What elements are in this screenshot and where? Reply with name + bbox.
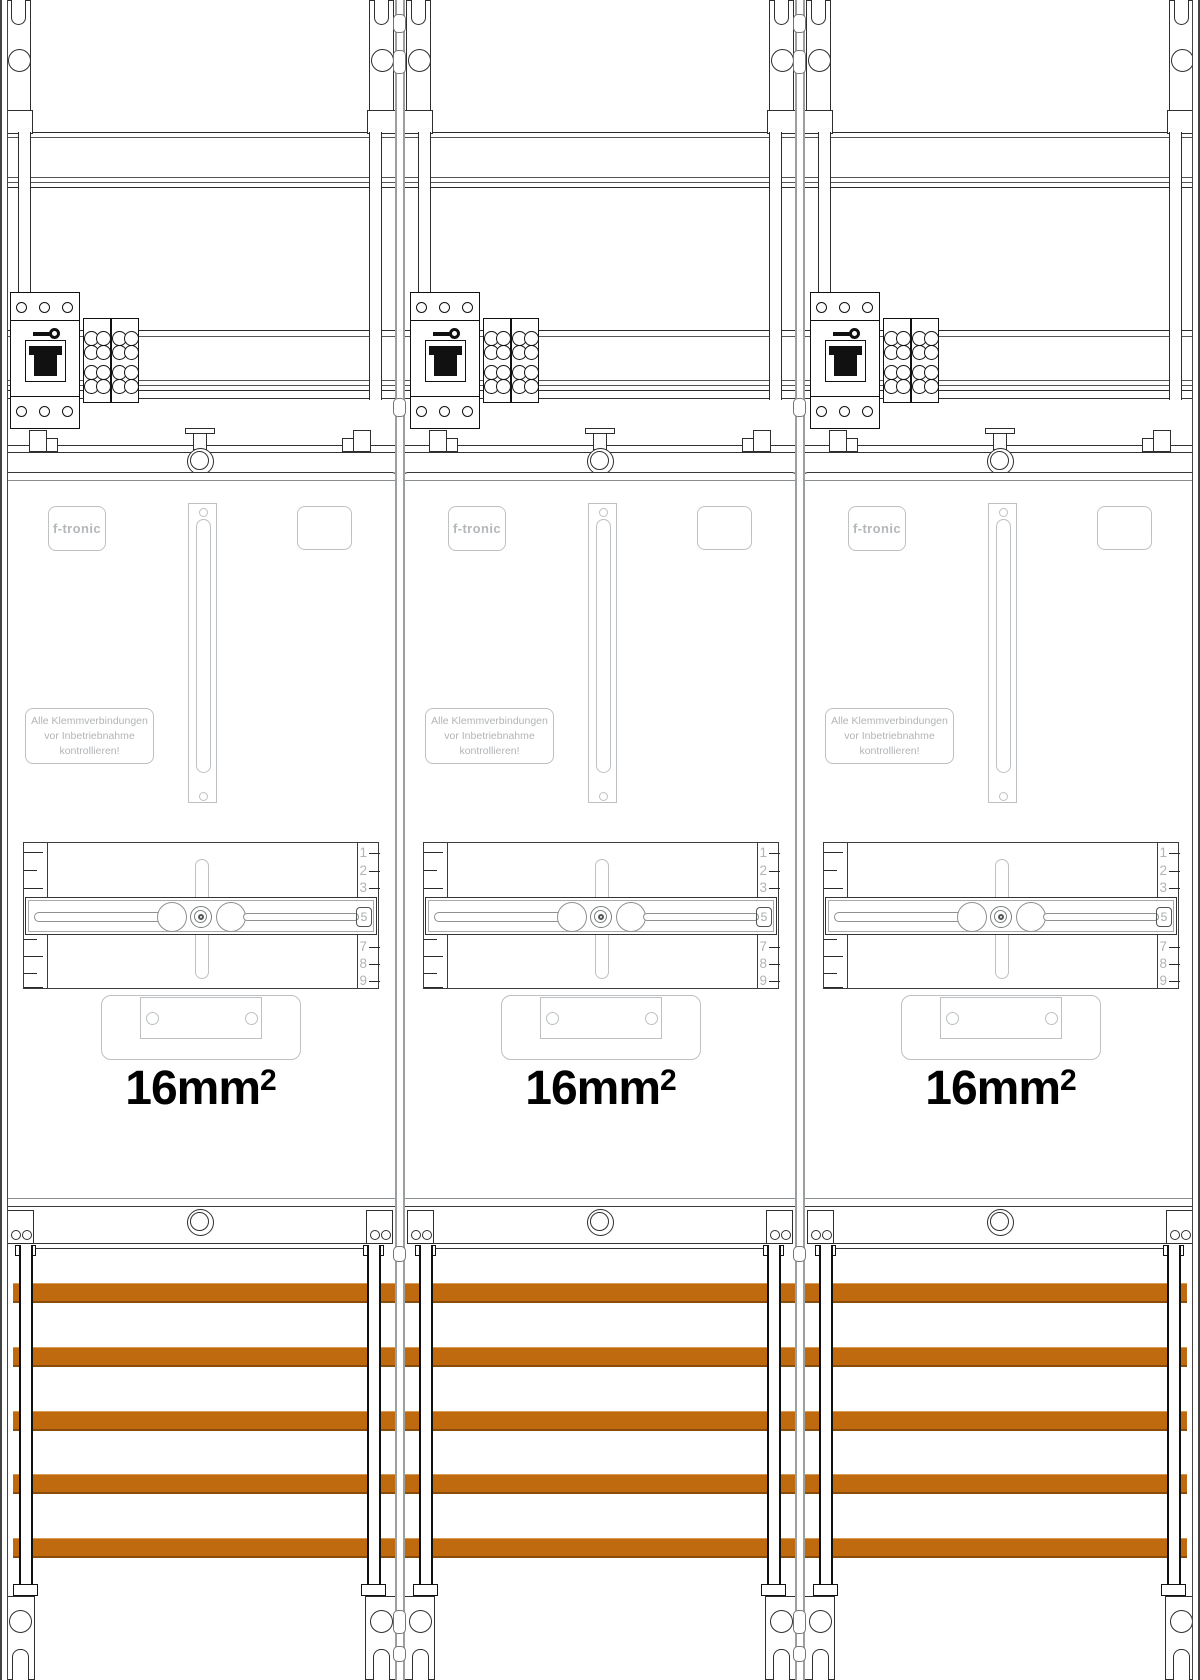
meter-panel-cover: f-tronic Alle Klemmverbindungen vor Inbe… bbox=[2, 472, 398, 1207]
tick-mark bbox=[24, 987, 43, 988]
tick-mark bbox=[1169, 888, 1180, 889]
tick-mark bbox=[369, 964, 380, 965]
cross-section-label: 16mm2 bbox=[3, 1061, 399, 1116]
warning-line: vor Inbetriebnahme bbox=[826, 729, 953, 744]
mount-hole-inner bbox=[190, 1212, 209, 1231]
tick-mark bbox=[24, 888, 43, 889]
scale-number: 9 bbox=[1155, 974, 1167, 988]
tick-mark bbox=[769, 853, 780, 854]
band-profile bbox=[766, 1210, 793, 1244]
rail-notch bbox=[774, 0, 789, 25]
slider-hole bbox=[616, 902, 646, 932]
top-rail-right-narrow bbox=[1169, 132, 1182, 400]
scale-number: 1 bbox=[1155, 846, 1167, 860]
scale-number: 3 bbox=[755, 881, 767, 895]
rail-hole bbox=[809, 1610, 832, 1633]
meter-panel-cover: f-tronic Alle Klemmverbindungen vor Inbe… bbox=[402, 472, 798, 1207]
mount-hole-inner bbox=[590, 451, 609, 470]
divider-clip bbox=[393, 1610, 406, 1634]
profile-hole bbox=[370, 1230, 380, 1240]
tick-mark bbox=[24, 956, 43, 957]
profile-hole bbox=[1170, 1230, 1180, 1240]
device-divider bbox=[811, 320, 879, 321]
mount-hole bbox=[187, 448, 214, 475]
busbar-support bbox=[19, 1245, 33, 1586]
band-profile bbox=[1142, 438, 1154, 452]
scale-number: 8 bbox=[1155, 957, 1167, 971]
terminal-hole bbox=[896, 331, 911, 346]
profile-hole bbox=[822, 1230, 832, 1240]
terminal-hole bbox=[124, 345, 139, 360]
rail-notch bbox=[374, 0, 389, 25]
brand-text: f-tronic bbox=[453, 521, 501, 536]
tick-mark bbox=[824, 939, 837, 940]
meter-panel-cover: f-tronic Alle Klemmverbindungen vor Inbe… bbox=[802, 472, 1198, 1207]
screw-hole bbox=[16, 302, 27, 313]
brand-logo: f-tronic bbox=[848, 506, 906, 551]
center-bolt bbox=[190, 906, 212, 928]
tick-mark bbox=[369, 888, 380, 889]
divider-clip bbox=[393, 398, 406, 417]
busbar-support bbox=[1167, 1245, 1181, 1586]
slider-slot bbox=[1043, 913, 1159, 921]
slot-hole bbox=[199, 792, 208, 801]
tick-mark bbox=[424, 852, 443, 853]
cross-section-value: 16mm bbox=[925, 1062, 1060, 1115]
mount-hole-inner bbox=[590, 1212, 609, 1231]
enclosure-edge-left bbox=[0, 0, 8, 1680]
scale-number: 7 bbox=[1155, 940, 1167, 954]
tick-mark bbox=[824, 973, 837, 974]
slider-hole bbox=[216, 902, 246, 932]
device-divider bbox=[811, 396, 879, 397]
warning-label: Alle Klemmverbindungen vor Inbetriebnahm… bbox=[825, 708, 954, 764]
warning-line: kontrollieren! bbox=[26, 744, 153, 759]
band-profile bbox=[446, 438, 458, 452]
profile-hole bbox=[770, 1230, 780, 1240]
position-indicator: 5 bbox=[356, 907, 372, 927]
tick-mark bbox=[369, 947, 380, 948]
top-rail-right-foot bbox=[367, 110, 396, 134]
tick-mark bbox=[824, 870, 837, 871]
warning-line: Alle Klemmverbindungen bbox=[826, 714, 953, 729]
rail-hole bbox=[1170, 1610, 1193, 1633]
profile-hole bbox=[381, 1230, 391, 1240]
screw-hole bbox=[62, 406, 73, 417]
terminal-hole bbox=[96, 345, 111, 360]
band-profile bbox=[342, 438, 354, 452]
profile-hole bbox=[11, 1230, 21, 1240]
terminal-hole bbox=[96, 365, 111, 380]
screw-hole bbox=[439, 406, 450, 417]
switch-window bbox=[25, 340, 66, 382]
top-rail-right bbox=[369, 0, 394, 112]
screw-hole bbox=[146, 1012, 159, 1025]
warning-line: kontrollieren! bbox=[426, 744, 553, 759]
terminal-hole bbox=[524, 331, 539, 346]
divider-clip bbox=[793, 398, 806, 417]
panel-bottom-inner-line bbox=[803, 1198, 1197, 1199]
warning-line: vor Inbetriebnahme bbox=[426, 729, 553, 744]
mount-hole-inner bbox=[190, 451, 209, 470]
busbar-support-foot bbox=[761, 1584, 786, 1596]
panel-bottom-inner-line bbox=[3, 1198, 397, 1199]
band-profile bbox=[46, 438, 58, 452]
rail-notch bbox=[12, 1649, 29, 1680]
terminal-hole bbox=[924, 379, 939, 394]
sealing-slot bbox=[588, 503, 617, 803]
divider-clip bbox=[793, 50, 806, 74]
slider-slot bbox=[834, 912, 975, 922]
mounting-plate-inner bbox=[940, 997, 1062, 1039]
tick-mark bbox=[24, 973, 37, 974]
busbar-support-foot bbox=[413, 1584, 438, 1596]
band-profile bbox=[7, 1210, 34, 1244]
scale-number: 8 bbox=[355, 957, 367, 971]
rail-hole bbox=[771, 49, 794, 72]
terminal-block bbox=[483, 318, 511, 403]
slider-bar: 5 bbox=[425, 897, 777, 935]
warning-line: Alle Klemmverbindungen bbox=[426, 714, 553, 729]
top-rail-left bbox=[406, 0, 431, 112]
center-bolt-core bbox=[198, 914, 204, 920]
rail-hole bbox=[370, 1610, 393, 1633]
profile-hole bbox=[811, 1230, 821, 1240]
terminal-hole bbox=[96, 331, 111, 346]
terminal-hole bbox=[124, 379, 139, 394]
terminal-hole bbox=[124, 365, 139, 380]
tick-mark bbox=[424, 987, 443, 988]
panel-bottom-inner-line bbox=[403, 1198, 797, 1199]
scale-number: 1 bbox=[755, 846, 767, 860]
center-bolt bbox=[590, 906, 612, 928]
position-indicator: 5 bbox=[1156, 907, 1172, 927]
tick-mark bbox=[769, 981, 780, 982]
panel-top-inner-line bbox=[803, 480, 1197, 481]
tick-mark bbox=[824, 888, 843, 889]
terminal-block bbox=[111, 318, 139, 403]
mount-hole-inner bbox=[990, 451, 1009, 470]
top-rail-right-narrow bbox=[769, 132, 782, 400]
mount-hole bbox=[587, 448, 614, 475]
band-profile bbox=[742, 438, 754, 452]
busbar-support-foot bbox=[1161, 1584, 1186, 1596]
rail-notch bbox=[812, 1649, 829, 1680]
center-bolt bbox=[990, 906, 1012, 928]
scale-number: 9 bbox=[355, 974, 367, 988]
terminal-hole bbox=[496, 331, 511, 346]
switch-symbol bbox=[834, 354, 857, 376]
tick-mark bbox=[369, 981, 380, 982]
scale-number: 2 bbox=[755, 864, 767, 878]
divider-clip bbox=[393, 1646, 406, 1662]
tick-mark bbox=[424, 939, 437, 940]
terminal-hole bbox=[524, 365, 539, 380]
blank-plate bbox=[697, 506, 752, 550]
busbar-support-foot bbox=[361, 1584, 386, 1596]
rail-notch bbox=[1174, 0, 1189, 25]
band-edge-lines bbox=[833, 1243, 1167, 1249]
switch-window bbox=[825, 340, 866, 382]
slider-bar: 5 bbox=[825, 897, 1177, 935]
band-profile bbox=[753, 430, 771, 452]
cross-section-exponent: 2 bbox=[660, 1064, 677, 1097]
rail-notch bbox=[412, 1649, 429, 1680]
divider-clip bbox=[393, 14, 406, 33]
terminal-hole bbox=[924, 345, 939, 360]
switch-symbol bbox=[34, 354, 57, 376]
band-profile bbox=[353, 430, 371, 452]
terminal-hole bbox=[124, 331, 139, 346]
tick-mark bbox=[824, 956, 843, 957]
tick-mark bbox=[769, 964, 780, 965]
brand-text: f-tronic bbox=[53, 521, 101, 536]
warning-label: Alle Klemmverbindungen vor Inbetriebnahm… bbox=[425, 708, 554, 764]
scale-number: 7 bbox=[355, 940, 367, 954]
band-profile bbox=[366, 1210, 393, 1244]
scale-number: 9 bbox=[755, 974, 767, 988]
tick-mark bbox=[769, 871, 780, 872]
cross-section-exponent: 2 bbox=[1060, 1064, 1077, 1097]
terminal-hole bbox=[496, 345, 511, 360]
rail-hole bbox=[808, 49, 831, 72]
screw-hole bbox=[39, 406, 50, 417]
terminal-hole bbox=[896, 379, 911, 394]
terminal-hole bbox=[896, 345, 911, 360]
band-edge-lines bbox=[433, 1243, 767, 1249]
busbar-support bbox=[367, 1245, 381, 1586]
main-switch-device bbox=[410, 292, 480, 429]
switch-window bbox=[425, 340, 466, 382]
scale-number: 8 bbox=[755, 957, 767, 971]
key-icon bbox=[33, 332, 50, 336]
rail-hole bbox=[408, 49, 431, 72]
tick-mark bbox=[1169, 964, 1180, 965]
slider-slot bbox=[34, 912, 175, 922]
scale-number: 2 bbox=[1155, 864, 1167, 878]
mount-hole bbox=[587, 1209, 614, 1236]
tick-mark bbox=[1169, 871, 1180, 872]
device-divider bbox=[411, 396, 479, 397]
band-profile bbox=[1153, 430, 1171, 452]
mount-hole bbox=[987, 448, 1014, 475]
slot-hole bbox=[999, 792, 1008, 801]
top-rail-right-narrow bbox=[369, 132, 382, 400]
screw-hole bbox=[462, 406, 473, 417]
rail-hole bbox=[409, 1610, 432, 1633]
mounting-plate-inner bbox=[540, 997, 662, 1039]
scale-number: 1 bbox=[355, 846, 367, 860]
profile-hole bbox=[22, 1230, 32, 1240]
profile-hole bbox=[1181, 1230, 1191, 1240]
top-rail-left bbox=[6, 0, 31, 112]
slider-hole bbox=[1016, 902, 1046, 932]
sealing-slot bbox=[988, 503, 1017, 803]
enclosure-edge-right bbox=[1192, 0, 1200, 1680]
screw-hole bbox=[862, 406, 873, 417]
tick-mark bbox=[424, 870, 437, 871]
slot-hole bbox=[599, 508, 608, 517]
screw-hole bbox=[816, 302, 827, 313]
tick-mark bbox=[24, 852, 43, 853]
key-icon bbox=[849, 328, 860, 339]
main-switch-device bbox=[810, 292, 880, 429]
key-icon bbox=[449, 328, 460, 339]
profile-hole bbox=[781, 1230, 791, 1240]
terminal-hole bbox=[896, 365, 911, 380]
slot-channel bbox=[596, 519, 611, 773]
scale-number: 3 bbox=[355, 881, 367, 895]
top-rail-left-foot bbox=[804, 110, 833, 134]
rail-notch bbox=[11, 0, 26, 25]
terminal-hole bbox=[924, 365, 939, 380]
divider-clip bbox=[393, 50, 406, 74]
blank-plate bbox=[297, 506, 352, 550]
screw-hole bbox=[439, 302, 450, 313]
slider-hole bbox=[557, 902, 587, 932]
rail-hole bbox=[371, 49, 394, 72]
mount-hole bbox=[987, 1209, 1014, 1236]
switch-symbol bbox=[434, 354, 457, 376]
band-profile bbox=[1166, 1210, 1193, 1244]
tick-mark bbox=[369, 853, 380, 854]
slider-hole bbox=[957, 902, 987, 932]
slot-hole bbox=[199, 508, 208, 517]
screw-hole bbox=[546, 1012, 559, 1025]
cross-section-label: 16mm2 bbox=[403, 1061, 799, 1116]
key-icon bbox=[49, 328, 60, 339]
tick-mark bbox=[24, 939, 37, 940]
brand-text: f-tronic bbox=[853, 521, 901, 536]
divider-clip bbox=[793, 14, 806, 33]
band-profile bbox=[429, 430, 447, 452]
terminal-hole bbox=[496, 365, 511, 380]
terminal-hole bbox=[96, 379, 111, 394]
rail-hole bbox=[9, 1610, 32, 1633]
band-profile bbox=[407, 1210, 434, 1244]
tick-mark bbox=[369, 871, 380, 872]
tick-mark bbox=[424, 888, 443, 889]
terminal-block bbox=[83, 318, 111, 403]
module-divider bbox=[795, 0, 805, 1680]
screw-hole bbox=[862, 302, 873, 313]
band-edge-lines bbox=[33, 1243, 367, 1249]
band-profile bbox=[807, 1210, 834, 1244]
key-icon bbox=[433, 332, 450, 336]
divider-clip bbox=[793, 1646, 806, 1662]
bottom-rail-right bbox=[365, 1596, 396, 1680]
screw-hole bbox=[645, 1012, 658, 1025]
tick-mark bbox=[1169, 853, 1180, 854]
blank-plate bbox=[1097, 506, 1152, 550]
panel-module-2: f-tronic Alle Klemmverbindungen vor Inbe… bbox=[400, 0, 800, 1680]
busbar-support bbox=[819, 1245, 833, 1586]
panel-module-1: f-tronic Alle Klemmverbindungen vor Inbe… bbox=[0, 0, 400, 1680]
slot-hole bbox=[999, 508, 1008, 517]
slot-channel bbox=[196, 519, 211, 773]
slot-channel bbox=[996, 519, 1011, 773]
bottom-rail-left bbox=[404, 1596, 435, 1680]
mounting-plate-inner bbox=[140, 997, 262, 1039]
mount-hole bbox=[187, 1209, 214, 1236]
brand-logo: f-tronic bbox=[48, 506, 106, 551]
cross-section-exponent: 2 bbox=[260, 1064, 277, 1097]
screw-hole bbox=[816, 406, 827, 417]
screw-hole bbox=[839, 302, 850, 313]
screw-hole bbox=[245, 1012, 258, 1025]
bottom-rail-left bbox=[4, 1596, 35, 1680]
terminal-hole bbox=[496, 379, 511, 394]
screw-hole bbox=[416, 302, 427, 313]
rail-notch bbox=[411, 0, 426, 25]
terminal-hole bbox=[924, 331, 939, 346]
terminal-hole bbox=[524, 345, 539, 360]
band-profile bbox=[829, 430, 847, 452]
slider-slot bbox=[434, 912, 575, 922]
screw-hole bbox=[1045, 1012, 1058, 1025]
screw-hole bbox=[946, 1012, 959, 1025]
tick-mark bbox=[769, 888, 780, 889]
key-icon bbox=[833, 332, 850, 336]
terminal-block bbox=[883, 318, 911, 403]
warning-line: kontrollieren! bbox=[826, 744, 953, 759]
profile-hole bbox=[411, 1230, 421, 1240]
screw-hole bbox=[462, 302, 473, 313]
rail-notch bbox=[373, 1649, 390, 1680]
tick-mark bbox=[824, 987, 843, 988]
tick-mark bbox=[1169, 981, 1180, 982]
scale-number: 3 bbox=[1155, 881, 1167, 895]
bottom-rail-left bbox=[804, 1596, 835, 1680]
tick-mark bbox=[24, 870, 37, 871]
slider-slot bbox=[243, 913, 359, 921]
tick-mark bbox=[1169, 947, 1180, 948]
band-profile bbox=[846, 438, 858, 452]
band-profile bbox=[29, 430, 47, 452]
module-divider bbox=[395, 0, 405, 1680]
cross-section-label: 16mm2 bbox=[803, 1061, 1199, 1116]
profile-hole bbox=[422, 1230, 432, 1240]
cross-section-value: 16mm bbox=[125, 1062, 260, 1115]
top-rail-right-foot bbox=[767, 110, 796, 134]
tick-mark bbox=[824, 852, 843, 853]
screw-hole bbox=[16, 406, 27, 417]
scale-number: 2 bbox=[355, 864, 367, 878]
divider-clip bbox=[793, 1610, 806, 1634]
top-rail-left bbox=[806, 0, 831, 112]
tick-mark bbox=[424, 973, 437, 974]
main-switch-device bbox=[10, 292, 80, 429]
mount-hole-inner bbox=[990, 1212, 1009, 1231]
top-rail-left-foot bbox=[404, 110, 433, 134]
warning-line: Alle Klemmverbindungen bbox=[26, 714, 153, 729]
divider-clip bbox=[793, 1246, 806, 1262]
device-divider bbox=[411, 320, 479, 321]
busbar-support bbox=[767, 1245, 781, 1586]
screw-hole bbox=[416, 406, 427, 417]
rail-hole bbox=[8, 49, 31, 72]
device-divider bbox=[11, 396, 79, 397]
top-rail-right bbox=[769, 0, 794, 112]
scale-number: 7 bbox=[755, 940, 767, 954]
device-divider bbox=[11, 320, 79, 321]
top-rail-right bbox=[1169, 0, 1194, 112]
tick-mark bbox=[424, 956, 443, 957]
screw-hole bbox=[62, 302, 73, 313]
slider-hole bbox=[157, 902, 187, 932]
warning-label: Alle Klemmverbindungen vor Inbetriebnahm… bbox=[25, 708, 154, 764]
rail-notch bbox=[773, 1649, 790, 1680]
